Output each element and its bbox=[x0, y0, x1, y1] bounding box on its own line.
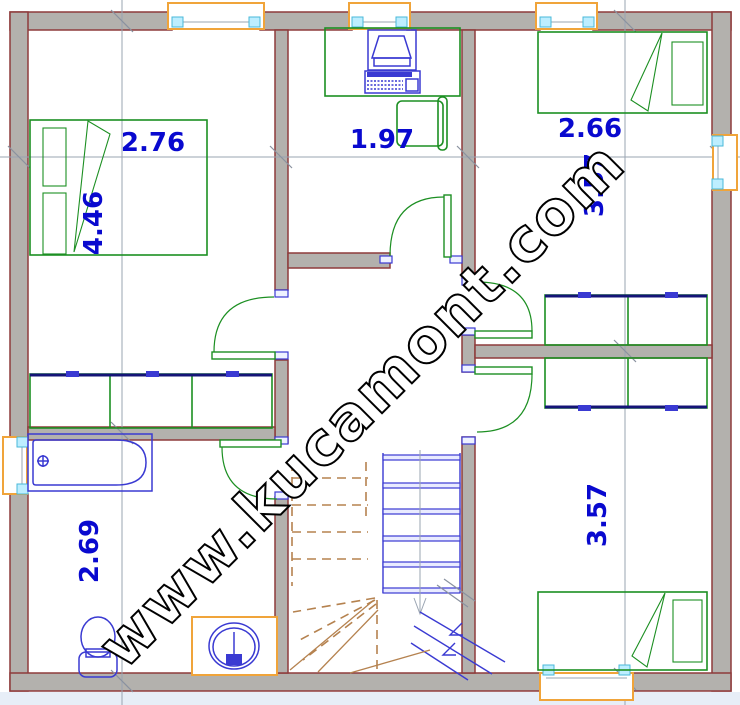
dim-bedroom-tl-height: 4.46 bbox=[79, 191, 109, 255]
floor-plan-drawing: 2.76 4.46 1.97 2.66 3.57 2.69 3.57 www.k… bbox=[0, 0, 740, 705]
dim-bedroom-br-height: 3.57 bbox=[583, 483, 613, 547]
window-top-middle bbox=[349, 3, 410, 29]
door-bedroom-br bbox=[462, 365, 532, 444]
single-bed-top-right bbox=[538, 32, 707, 113]
dim-bedroom-tl-width: 2.76 bbox=[121, 128, 185, 158]
keyboard bbox=[365, 71, 420, 93]
wardrobe-right-bottom bbox=[545, 358, 707, 411]
wall-between-right-bedrooms bbox=[475, 345, 712, 358]
floor-plan: 2.76 4.46 1.97 2.66 3.57 2.69 3.57 www.k… bbox=[0, 0, 740, 705]
wall-bedroom-tl-right-upper bbox=[275, 30, 288, 290]
single-bed-bottom-right bbox=[538, 592, 707, 670]
computer-monitor bbox=[368, 30, 416, 70]
bathtub bbox=[28, 434, 152, 491]
window-top-left bbox=[168, 3, 264, 29]
door-study bbox=[380, 195, 462, 263]
desk bbox=[325, 28, 460, 96]
pillow bbox=[673, 600, 702, 662]
window-right bbox=[712, 135, 737, 190]
wall-study-right bbox=[462, 30, 475, 278]
stair-rails-below bbox=[411, 612, 505, 680]
pillow bbox=[672, 42, 703, 105]
wall-study-bottom bbox=[288, 253, 390, 268]
pillow bbox=[43, 193, 66, 254]
dim-bathroom-height: 2.69 bbox=[75, 519, 105, 583]
watermark-text: www.kucamont.com bbox=[85, 128, 639, 682]
numpad bbox=[406, 79, 418, 91]
window-top-right bbox=[536, 3, 597, 29]
door-bedroom-tl bbox=[212, 290, 288, 359]
blanket-fold bbox=[631, 33, 662, 111]
window-left-bathroom bbox=[3, 437, 28, 494]
dim-study-width: 1.97 bbox=[350, 125, 414, 155]
blanket-fold bbox=[632, 593, 665, 667]
wardrobe-right-top bbox=[545, 292, 707, 345]
wardrobe-left bbox=[30, 371, 272, 428]
sink-vanity bbox=[192, 617, 277, 675]
